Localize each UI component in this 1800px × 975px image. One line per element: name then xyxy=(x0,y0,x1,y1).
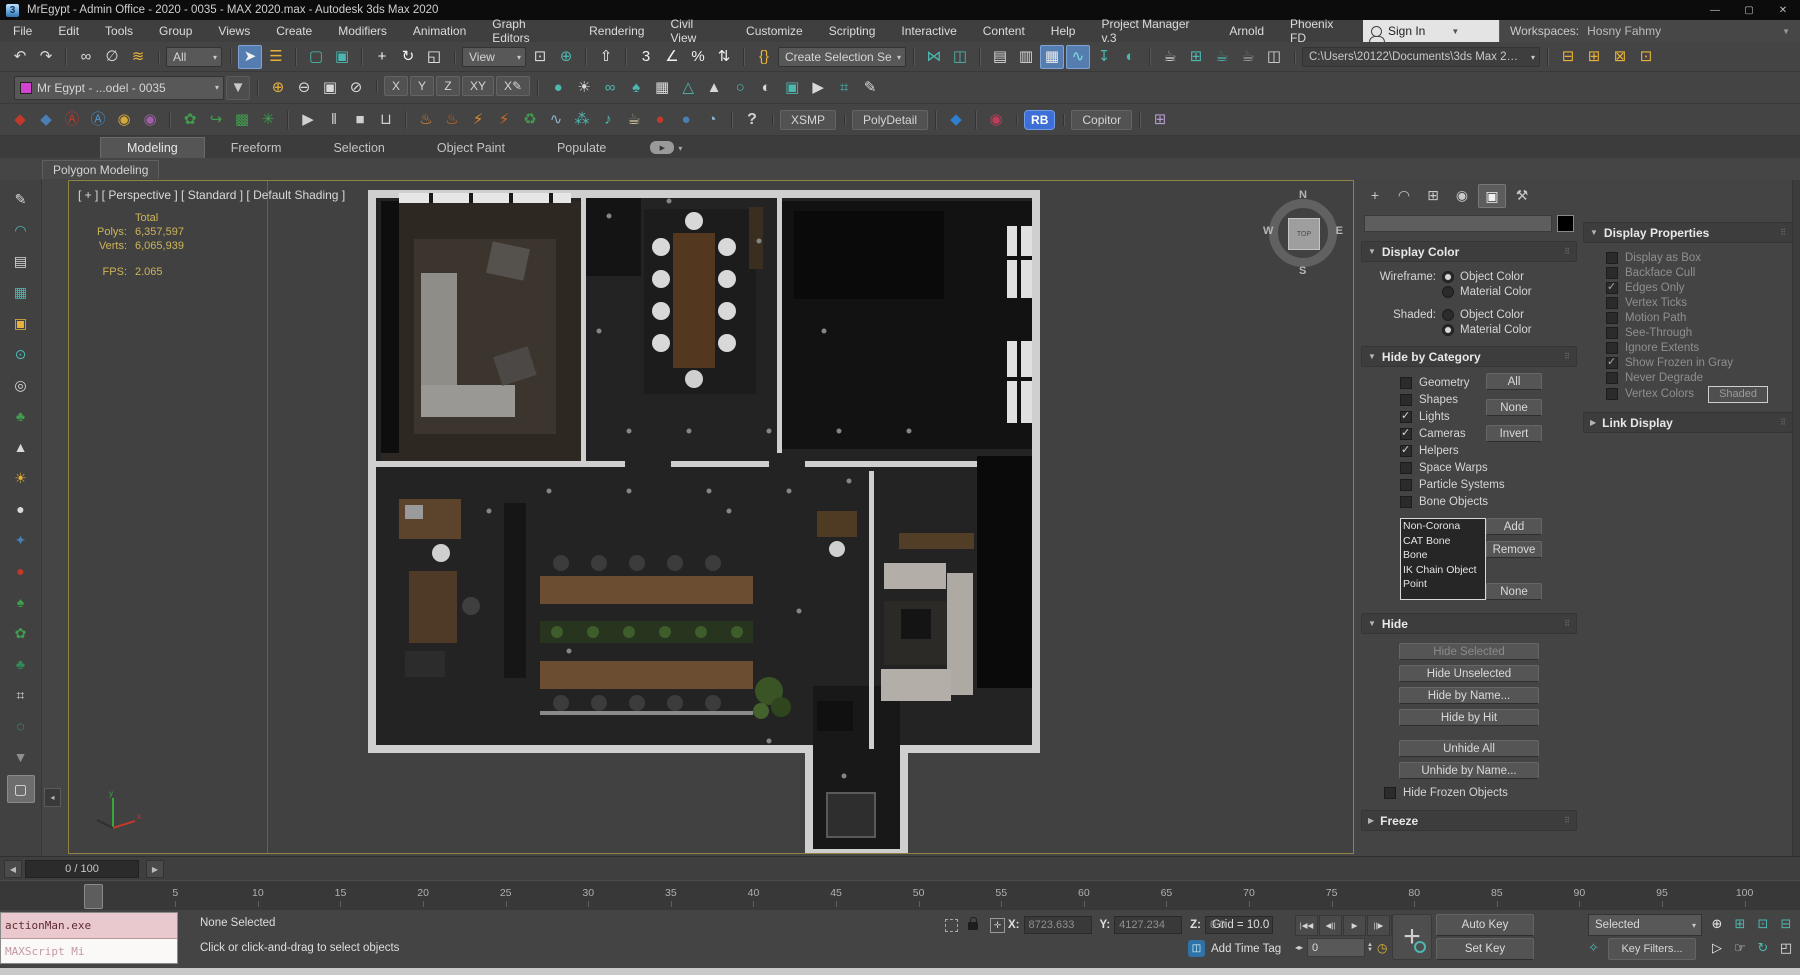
key-step-icon[interactable]: ◂▸ xyxy=(1295,943,1303,952)
scene-render[interactable] xyxy=(69,181,1353,853)
checkbox[interactable] xyxy=(1384,787,1396,799)
corona-icon[interactable]: ◉ xyxy=(984,108,1008,132)
timeline-tick[interactable]: 50 xyxy=(877,887,960,899)
ribbon-tab[interactable]: Selection xyxy=(307,138,410,158)
viewport-statistics: Total Polys:6,357,597 Verts:6,065,939 FP… xyxy=(79,211,184,279)
chevron-right-icon: ▶ xyxy=(1590,418,1596,427)
hide-button[interactable]: Unhide by Name... xyxy=(1399,762,1539,779)
auto-key-button[interactable]: Auto Key xyxy=(1436,914,1534,936)
sign-in-button[interactable]: Sign In ▼ xyxy=(1363,20,1499,42)
menu-item[interactable]: Scripting xyxy=(816,20,889,42)
rollout-hide[interactable]: ▼ Hide ⠿ xyxy=(1361,613,1577,634)
keyboard-override-icon[interactable]: ⇧ xyxy=(594,45,618,69)
dashed-circle-icon[interactable]: ◌ xyxy=(8,713,34,739)
timeline-tick[interactable]: 40 xyxy=(712,887,795,899)
isolate-selection-icon[interactable] xyxy=(945,919,958,932)
material-box-icon[interactable]: ▣ xyxy=(8,310,34,336)
timeline-tick[interactable]: 60 xyxy=(1043,887,1126,899)
render-production-icon[interactable]: ☕ xyxy=(1210,45,1234,69)
stop-icon[interactable]: ■ xyxy=(348,108,372,132)
x-coordinate-field[interactable]: 8723.633 xyxy=(1024,916,1092,934)
plant-icon[interactable]: ♣ xyxy=(8,403,34,429)
snaps-toggle-icon[interactable]: 3 xyxy=(634,45,658,69)
key-mode-dropdown[interactable]: Selected xyxy=(1588,914,1702,936)
timeline-tick[interactable]: 65 xyxy=(1125,887,1208,899)
workspaces-dropdown[interactable]: Workspaces: Hosny Fahmy ▼ xyxy=(1499,20,1800,42)
annotate-pencil-icon[interactable]: ✎ xyxy=(8,186,34,212)
add-time-tag[interactable]: ◫ Add Time Tag xyxy=(1188,940,1281,957)
modify-tab[interactable]: ◠ xyxy=(1391,184,1417,206)
wave-icon[interactable]: ∿ xyxy=(544,108,568,132)
project-link-icon[interactable]: ⊠ xyxy=(1608,45,1632,69)
command-panel: +◠⊞◉▣⚒ ▼ Display Color ⠿ Wireframe: xyxy=(1356,180,1800,856)
key-icon xyxy=(1414,941,1426,953)
material-editor-icon[interactable]: ◐ xyxy=(1118,45,1142,69)
torus-icon[interactable]: ○ xyxy=(728,76,752,100)
green-grid-icon[interactable]: ▩ xyxy=(230,108,254,132)
hide-button[interactable]: Hide by Name... xyxy=(1399,687,1539,704)
polygon-modeling-panel[interactable]: Polygon Modeling xyxy=(42,160,159,179)
checkbox[interactable] xyxy=(1400,479,1412,491)
app-icon[interactable]: 3 xyxy=(6,4,19,17)
railclone-icon[interactable]: ↪ xyxy=(204,108,228,132)
previous-frame-icon[interactable]: ◀|| xyxy=(1319,915,1342,936)
arch-object-icon[interactable]: △ xyxy=(676,76,700,100)
menu-item[interactable]: Edit xyxy=(45,20,92,42)
viewcube-top-face[interactable]: TOP xyxy=(1288,218,1320,250)
xsmp-button[interactable]: XSMP xyxy=(780,110,836,130)
menu-items: FileEditToolsGroupViewsCreateModifiersAn… xyxy=(0,20,1363,42)
select-and-link-icon[interactable]: ∞ xyxy=(74,45,98,69)
timeline-tick[interactable]: 10 xyxy=(217,887,300,899)
reference-coordinate-dropdown[interactable]: View xyxy=(462,47,526,67)
display-property-row: Motion Path xyxy=(1606,310,1794,325)
timeline-tick[interactable]: 70 xyxy=(1208,887,1291,899)
ribbon-tab[interactable]: Freeform xyxy=(205,138,308,158)
plugin-a-blue-icon[interactable]: Ⓐ xyxy=(86,108,110,132)
rollout-hide-by-category[interactable]: ▼ Hide by Category ⠿ xyxy=(1361,346,1577,367)
render-compare-icon[interactable]: ◫ xyxy=(1262,45,1286,69)
checkbox[interactable] xyxy=(1400,377,1412,389)
plugin-purple-icon[interactable]: ◉ xyxy=(138,108,162,132)
help-icon[interactable]: ? xyxy=(740,108,764,132)
category-button[interactable]: All xyxy=(1486,373,1542,390)
splash-icon[interactable]: ⚡ xyxy=(466,108,490,132)
toggle-ribbon-icon[interactable]: ▦ xyxy=(1040,45,1064,69)
compass-south[interactable]: S xyxy=(1299,265,1306,277)
phoenix-fire2-icon[interactable]: ♨ xyxy=(440,108,464,132)
timeline-tick[interactable]: 90 xyxy=(1538,887,1621,899)
image-plane-icon[interactable]: ▣ xyxy=(780,76,804,100)
object-name-field[interactable] xyxy=(1364,215,1552,232)
menu-item[interactable]: Animation xyxy=(400,20,479,42)
layers-toolbar: Mr Egypt - ...odel - 0035 ▼ ⊕ ⊖ xyxy=(0,72,1800,104)
menu-item[interactable]: Views xyxy=(205,20,263,42)
select-and-scale-icon[interactable]: ◱ xyxy=(422,45,446,69)
restrict-y-button[interactable]: Y xyxy=(410,76,434,96)
redo-icon[interactable]: ↷ xyxy=(34,45,58,69)
object-color-swatch[interactable] xyxy=(1557,215,1574,232)
maximize-viewport-icon[interactable]: ◰ xyxy=(1775,938,1797,958)
ribbon-tab[interactable]: Modeling xyxy=(100,137,205,158)
select-by-name-icon[interactable]: ☰ xyxy=(264,45,288,69)
hide-button[interactable]: Hide Unselected xyxy=(1399,665,1539,682)
frame-spinner[interactable]: ▲▼ xyxy=(1367,943,1373,953)
cone-icon[interactable]: ▲ xyxy=(8,434,34,460)
menu-item[interactable]: Interactive xyxy=(888,20,969,42)
timeline-tick[interactable]: 25 xyxy=(464,887,547,899)
render-setup-icon[interactable]: ☕ xyxy=(1158,45,1182,69)
camera-icon[interactable]: ∞ xyxy=(598,76,622,100)
menu-item[interactable]: Arnold xyxy=(1216,20,1277,42)
minimize-button[interactable]: — xyxy=(1698,0,1732,20)
list-none-button[interactable]: None xyxy=(1486,583,1542,600)
light-icon[interactable]: ☀ xyxy=(572,76,596,100)
sun-icon[interactable]: ☀ xyxy=(8,465,34,491)
key-filters-button[interactable]: Key Filters... xyxy=(1608,938,1696,960)
forest-pack-icon[interactable]: ✿ xyxy=(178,108,202,132)
menu-item[interactable]: Project Manager v.3 xyxy=(1088,20,1216,42)
menu-item[interactable]: Help xyxy=(1038,20,1089,42)
display-property-row: Never Degrade xyxy=(1606,370,1794,385)
display-property-row: Show Frozen in Gray xyxy=(1606,355,1794,370)
timeline-tick[interactable]: 45 xyxy=(795,887,878,899)
selection-mode-icon[interactable]: ▢ xyxy=(7,775,35,803)
project-save-icon[interactable]: ⊟ xyxy=(1556,45,1580,69)
bird-icon[interactable]: ♪ xyxy=(596,108,620,132)
menu-item[interactable]: Graph Editors xyxy=(479,20,576,42)
curve-editor-icon[interactable]: ∿ xyxy=(1066,45,1090,69)
spinner-snap-icon[interactable]: ⇅ xyxy=(712,45,736,69)
sini-blue-icon[interactable]: ◆ xyxy=(34,108,58,132)
y-coordinate-field[interactable]: 4127.234 xyxy=(1114,916,1182,934)
timeline-tick[interactable]: 5 xyxy=(134,887,217,899)
motion-tab[interactable]: ◉ xyxy=(1449,184,1475,206)
category-checkbox-row: Space Warps xyxy=(1400,459,1578,476)
create-new-layer-icon[interactable]: ⊕ xyxy=(266,76,290,100)
checkbox[interactable] xyxy=(1400,496,1412,508)
red-dot-icon[interactable]: ● xyxy=(8,558,34,584)
category-button[interactable]: None xyxy=(1486,399,1542,416)
foliage-icon[interactable]: ♠ xyxy=(624,76,648,100)
timeline-tick[interactable]: 55 xyxy=(960,887,1043,899)
list-item[interactable]: CAT Bone xyxy=(1401,534,1485,549)
leaf-icon[interactable]: ♣ xyxy=(8,651,34,677)
ribbon-tab[interactable]: Populate xyxy=(531,138,632,158)
restrict-xy-plane-button[interactable]: XY xyxy=(462,76,494,96)
mesh-grid-icon[interactable]: ▦ xyxy=(8,279,34,305)
menu-item[interactable]: Modifiers xyxy=(325,20,400,42)
edit-named-selection-sets-icon[interactable]: {} xyxy=(752,45,776,69)
cube-icon: ◫ xyxy=(1188,940,1205,957)
timeline-tick[interactable]: 100 xyxy=(1703,887,1786,899)
grid-array-icon[interactable]: ▤ xyxy=(8,248,34,274)
named-selection-set-dropdown[interactable]: Create Selection Se xyxy=(778,47,906,67)
plugin-yellow-icon[interactable]: ◉ xyxy=(112,108,136,132)
menu-item[interactable]: Group xyxy=(146,20,205,42)
selection-lock-icon[interactable] xyxy=(968,922,978,930)
undo-icon[interactable]: ↶ xyxy=(8,45,32,69)
timeline-ruler[interactable]: 5101520253035404550556065707580859095100 xyxy=(0,880,1800,912)
script-window-icon[interactable]: ⊞ xyxy=(1148,108,1172,132)
recycle-icon[interactable]: ♻ xyxy=(518,108,542,132)
close-button[interactable]: ✕ xyxy=(1766,0,1800,20)
radio-button[interactable] xyxy=(1442,286,1454,298)
zoom-extents-all-icon[interactable]: ⊟ xyxy=(1775,914,1797,934)
display-property-row: Edges Only xyxy=(1606,280,1794,295)
command-panel-tabs: +◠⊞◉▣⚒ xyxy=(1360,180,1578,210)
angle-snap-icon[interactable]: ∠ xyxy=(660,45,684,69)
display-tab[interactable]: ▣ xyxy=(1478,184,1506,208)
window-crossing-icon[interactable]: ▣ xyxy=(330,45,354,69)
drops-icon[interactable]: ⁂ xyxy=(570,108,594,132)
hide-button: Hide Selected xyxy=(1399,643,1539,660)
flower-icon[interactable]: ✿ xyxy=(8,620,34,646)
timeline-tick[interactable]: 35 xyxy=(630,887,713,899)
create-tab[interactable]: + xyxy=(1362,184,1388,206)
rollout-link-display[interactable]: ▶ Link Display ⠿ xyxy=(1583,412,1793,433)
checkbox xyxy=(1606,388,1618,400)
rendered-frame-window-icon[interactable]: ⊞ xyxy=(1184,45,1208,69)
list-button[interactable]: Add xyxy=(1486,518,1542,535)
time-configuration-icon[interactable]: ◷ xyxy=(1377,941,1387,955)
blue-ball-icon[interactable]: ● xyxy=(674,108,698,132)
checkbox xyxy=(1606,372,1618,384)
checkbox[interactable] xyxy=(1400,445,1412,457)
rollout-display-color[interactable]: ▼ Display Color ⠿ xyxy=(1361,241,1577,262)
rollout-freeze[interactable]: ▶ Freeze ⠿ xyxy=(1361,810,1577,831)
select-and-move-icon[interactable]: + xyxy=(370,45,394,69)
menu-item[interactable]: Content xyxy=(970,20,1038,42)
hash-icon[interactable]: ⌗ xyxy=(8,682,34,708)
polydetail-button[interactable]: PolyDetail xyxy=(852,110,928,130)
plugin-a-red-icon[interactable]: Ⓐ xyxy=(60,108,84,132)
menu-item[interactable]: Customize xyxy=(733,20,816,42)
doc-icon[interactable]: ◐ xyxy=(754,76,778,100)
selection-filter-dropdown[interactable]: All xyxy=(166,47,222,67)
menu-item[interactable]: Phoenix FD xyxy=(1277,20,1363,42)
restrict-plane-flyout-button[interactable]: X✎ xyxy=(496,76,530,96)
play-animation-icon[interactable]: ▶ xyxy=(1343,915,1366,936)
checkbox xyxy=(1606,252,1618,264)
target-icon[interactable]: ⊙ xyxy=(8,341,34,367)
menu-item[interactable]: Create xyxy=(263,20,325,42)
trackbar-right-arrow[interactable]: ▶ xyxy=(146,860,164,878)
viewport-layout-tab[interactable]: ◂ xyxy=(44,788,61,807)
flyout-arrow-icon[interactable]: ▼ xyxy=(8,744,34,770)
checkbox xyxy=(1606,327,1618,339)
radio-button[interactable] xyxy=(1442,309,1454,321)
select-objects-in-layer-icon[interactable]: ▣ xyxy=(318,76,342,100)
timeline-tick[interactable]: 80 xyxy=(1373,887,1456,899)
ribbon-tab[interactable]: Object Paint xyxy=(411,138,531,158)
copitor-button[interactable]: Copitor xyxy=(1071,110,1132,130)
current-frame-field[interactable]: 0 xyxy=(1307,938,1365,957)
panel-scrollbar[interactable] xyxy=(1792,180,1800,856)
green-burst-icon[interactable]: ✳ xyxy=(256,108,280,132)
ribbon-tabs: ModelingFreeformSelectionObject PaintPop… xyxy=(0,136,1800,158)
category-checkbox-row: Particle Systems xyxy=(1400,476,1578,493)
key-mode-icon[interactable]: ✧ xyxy=(1588,940,1599,956)
rectangular-selection-region-icon[interactable]: ▢ xyxy=(304,45,328,69)
checkbox xyxy=(1606,267,1618,279)
next-frame-icon[interactable]: ||▶ xyxy=(1367,915,1390,936)
list-item[interactable]: Non-Corona xyxy=(1401,519,1485,534)
paint-icon[interactable]: ✎ xyxy=(858,76,882,100)
compass-east[interactable]: E xyxy=(1336,225,1343,237)
display-property-row: Backface Cull xyxy=(1606,265,1794,280)
restrict-z-button[interactable]: Z xyxy=(436,76,460,96)
chevron-down-icon: ▼ xyxy=(1368,247,1376,256)
exclusion-list[interactable]: Non-Corona CAT Bone Bone IK Chain Object… xyxy=(1400,518,1486,600)
display-property-row: Ignore Extents xyxy=(1606,340,1794,355)
tree-icon[interactable]: ♠ xyxy=(8,589,34,615)
hierarchy-tab[interactable]: ⊞ xyxy=(1420,184,1446,206)
add-selection-to-layer-icon[interactable]: ⊖ xyxy=(292,76,316,100)
spray-icon[interactable]: ▲ xyxy=(702,76,726,100)
left-toolbar: ✎ ◠ ▤ ▦ ▣ ⊙ xyxy=(0,180,42,856)
align-icon[interactable]: ◫ xyxy=(948,45,972,69)
rollout-display-properties[interactable]: ▼ Display Properties ⠿ xyxy=(1583,222,1793,243)
listener-line[interactable]: actionMan.exe xyxy=(1,913,177,939)
trackbar-left-arrow[interactable]: ◀ xyxy=(4,860,22,878)
menu-item[interactable]: File xyxy=(0,20,45,42)
menu-item[interactable]: Civil View xyxy=(657,20,733,42)
viewport-navigation-row2: ▷☞↻◰ xyxy=(1706,938,1798,958)
maximize-button[interactable]: ▢ xyxy=(1732,0,1766,20)
set-keys-button[interactable]: + xyxy=(1392,914,1432,960)
timeline-tick[interactable]: 85 xyxy=(1456,887,1539,899)
person-icon xyxy=(1371,26,1382,37)
select-object-icon[interactable]: ➤ xyxy=(238,45,262,69)
list-item[interactable]: Bone xyxy=(1401,548,1485,563)
grip-icon: ⠿ xyxy=(1564,352,1571,361)
set-key-button[interactable]: Set Key xyxy=(1436,938,1534,960)
chevron-down-icon: ▼ xyxy=(1782,27,1790,36)
listener-line[interactable]: MAXScript Mi xyxy=(1,939,177,963)
timeline-tick[interactable]: 95 xyxy=(1621,887,1704,899)
world-axis-tripod: x y xyxy=(87,786,141,839)
phoenix-fire-icon[interactable]: ♨ xyxy=(414,108,438,132)
go-to-start-icon[interactable]: |◀◀ xyxy=(1295,915,1318,936)
hide-button[interactable]: Hide by Hit xyxy=(1399,709,1539,726)
display-color-option: Wireframe: Object Color xyxy=(1372,269,1578,284)
spark-icon[interactable]: ✦ xyxy=(8,527,34,553)
3ds-max-window: 3 MrEgypt - Admin Office - 2020 - 0035 -… xyxy=(0,0,1800,975)
pan-hand-icon[interactable]: ☞ xyxy=(1729,938,1751,958)
viewport-label[interactable]: [ + ] [ Perspective ] [ Standard ] [ Def… xyxy=(78,188,345,202)
checkbox[interactable] xyxy=(1400,394,1412,406)
globe-icon[interactable]: ◔ xyxy=(700,108,724,132)
toggle-scene-explorer-icon[interactable]: ▤ xyxy=(988,45,1012,69)
claw-icon[interactable]: ⚡ xyxy=(492,108,516,132)
zoom-extents-icon[interactable]: ⊡ xyxy=(1752,914,1774,934)
checkbox xyxy=(1606,297,1618,309)
bind-to-space-warp-icon[interactable]: ≋ xyxy=(126,45,150,69)
menu-item[interactable]: Tools xyxy=(92,20,146,42)
render-iterative-icon[interactable]: ☕ xyxy=(1236,45,1260,69)
red-ball-icon[interactable]: ● xyxy=(648,108,672,132)
use-pivot-center-icon[interactable]: ⊡ xyxy=(528,45,552,69)
project-path-dropdown[interactable]: C:\Users\20122\Documents\3ds Max 2020 xyxy=(1302,47,1540,67)
zoom-icon[interactable]: ⊕ xyxy=(1706,914,1728,934)
project-open-icon[interactable]: ⊞ xyxy=(1582,45,1606,69)
status-bar: actionMan.exe MAXScript Mi None Selected… xyxy=(0,910,1800,968)
orbit-icon[interactable]: ↻ xyxy=(1752,938,1774,958)
geometry-sphere-icon[interactable]: ● xyxy=(546,76,570,100)
checkbox[interactable] xyxy=(1400,411,1412,423)
select-and-manipulate-icon[interactable]: ⊕ xyxy=(554,45,578,69)
timeline-tick[interactable]: 30 xyxy=(547,887,630,899)
hide-button[interactable]: Unhide All xyxy=(1399,740,1539,757)
restrict-x-button[interactable]: X xyxy=(384,76,408,96)
list-item[interactable]: Point xyxy=(1401,577,1485,592)
list-button[interactable]: Remove xyxy=(1486,541,1542,558)
layer-dropdown[interactable]: Mr Egypt - ...odel - 0035 xyxy=(14,76,224,100)
dropbox-icon[interactable]: ◆ xyxy=(944,108,968,132)
list-item[interactable]: IK Chain Object xyxy=(1401,563,1485,578)
rb-button[interactable]: RB xyxy=(1024,110,1055,130)
timeline-tick[interactable]: 15 xyxy=(299,887,382,899)
sphere-icon[interactable]: ● xyxy=(8,496,34,522)
unlink-selection-icon[interactable]: ∅ xyxy=(100,45,124,69)
utilities-tab[interactable]: ⚒ xyxy=(1509,184,1535,206)
display-color-option: Shaded: Object Color xyxy=(1372,307,1578,322)
pan-to-selected-icon[interactable]: ▷ xyxy=(1706,938,1728,958)
play-icon[interactable]: ▶ xyxy=(296,108,320,132)
zoom-region-icon[interactable]: ⊞ xyxy=(1729,914,1751,934)
maxscript-mini-listener[interactable]: actionMan.exe MAXScript Mi xyxy=(0,912,178,964)
view-cube[interactable]: N S W E TOP xyxy=(1261,191,1345,275)
checkbox[interactable] xyxy=(1400,462,1412,474)
grip-icon: ⠿ xyxy=(1780,418,1787,427)
layer-color-swatch[interactable] xyxy=(20,82,32,94)
pause-icon[interactable]: ‖ xyxy=(322,108,346,132)
percent-snap-icon[interactable]: % xyxy=(686,45,710,69)
radio-button[interactable] xyxy=(1442,271,1454,283)
scene-explorer-flyout-icon[interactable]: ▼ xyxy=(226,76,250,100)
set-current-layer-icon[interactable]: ⊘ xyxy=(344,76,368,100)
window-object-icon[interactable]: ▦ xyxy=(650,76,674,100)
perspective-viewport[interactable]: [ + ] [ Perspective ] [ Standard ] [ Def… xyxy=(68,180,1354,854)
ring-icon[interactable]: ◎ xyxy=(8,372,34,398)
svg-text:x: x xyxy=(137,812,141,821)
tutorial-video-icon[interactable]: ▶ xyxy=(650,141,674,154)
menu-item[interactable]: Rendering xyxy=(576,20,657,42)
slide-icon[interactable]: ▶ xyxy=(806,76,830,100)
mirror-icon[interactable]: ⋈ xyxy=(922,45,946,69)
arc-tool-icon[interactable]: ◠ xyxy=(8,217,34,243)
cup-icon[interactable]: ☕ xyxy=(622,108,646,132)
sini-red-icon[interactable]: ◆ xyxy=(8,108,32,132)
timeline-tick[interactable]: 75 xyxy=(1290,887,1373,899)
project-settings-icon[interactable]: ⊡ xyxy=(1634,45,1658,69)
checkbox[interactable] xyxy=(1400,428,1412,440)
compass-north[interactable]: N xyxy=(1299,189,1307,201)
timeline-tick[interactable]: 20 xyxy=(382,887,465,899)
radio-button[interactable] xyxy=(1442,324,1454,336)
schematic-view-icon[interactable]: ↧ xyxy=(1092,45,1116,69)
compass-west[interactable]: W xyxy=(1263,225,1273,237)
time-slider[interactable] xyxy=(84,884,103,909)
toggle-layer-explorer-icon[interactable]: ▥ xyxy=(1014,45,1038,69)
category-button[interactable]: Invert xyxy=(1486,425,1542,442)
chevron-down-icon[interactable]: ▾ xyxy=(678,144,682,153)
trash-icon[interactable]: ⊔ xyxy=(374,108,398,132)
film-icon[interactable]: ⌗ xyxy=(832,76,856,100)
shaded-button[interactable]: Shaded xyxy=(1708,386,1768,403)
select-and-rotate-icon[interactable]: ↻ xyxy=(396,45,420,69)
